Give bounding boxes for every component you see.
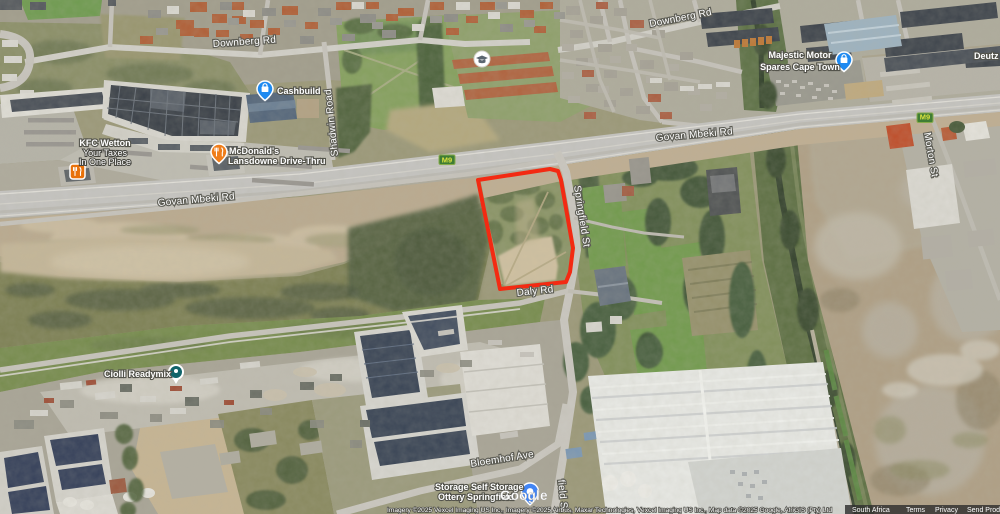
svg-text:Google: Google	[500, 488, 548, 503]
svg-text:Privacy: Privacy	[935, 507, 958, 514]
svg-text:M9: M9	[442, 156, 452, 165]
svg-text:Send Product Fe: Send Product Fe	[967, 507, 1000, 514]
svg-text:Cashbuild: Cashbuild	[277, 86, 321, 96]
svg-text:Deutz: Deutz	[974, 51, 999, 61]
svg-text:Ciolli Readymix: Ciolli Readymix	[104, 369, 171, 379]
svg-text:In One Place: In One Place	[79, 157, 131, 167]
svg-text:M9: M9	[920, 113, 930, 122]
svg-text:KFC Wetton: KFC Wetton	[79, 138, 130, 148]
svg-text:South Africa: South Africa	[852, 507, 890, 514]
svg-text:Terms: Terms	[906, 507, 926, 514]
svg-text:McDonald's: McDonald's	[229, 146, 279, 156]
svg-text:Lansdowne Drive-Thru: Lansdowne Drive-Thru	[228, 156, 326, 166]
svg-text:Imagery ©2025 Vexcel Imaging U: Imagery ©2025 Vexcel Imaging US Inc., Im…	[387, 506, 832, 514]
svg-text:Majestic Motor: Majestic Motor	[768, 50, 832, 60]
svg-text:Spares Cape Town: Spares Cape Town	[760, 62, 840, 72]
